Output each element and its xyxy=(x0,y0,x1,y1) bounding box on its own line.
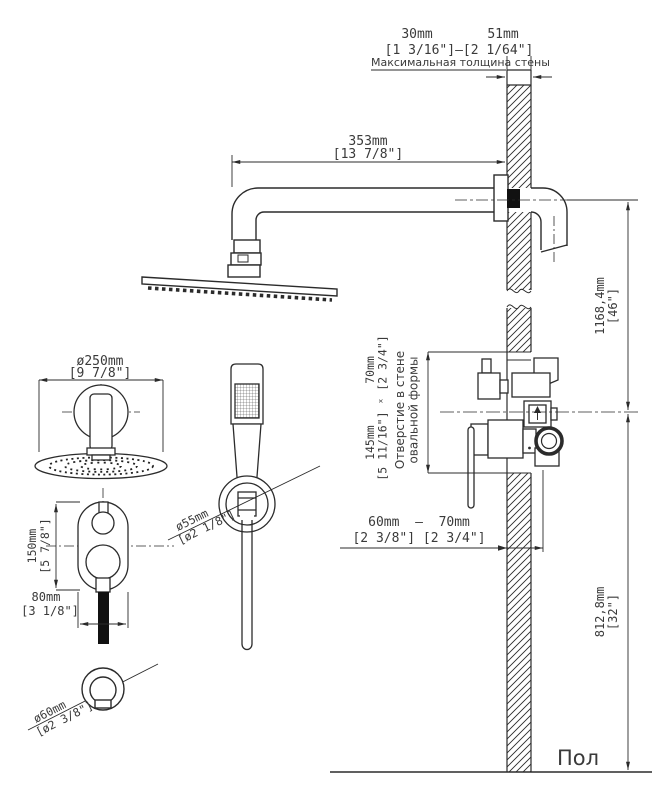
dim-upper-in: [46"] xyxy=(606,288,620,324)
dim-lower-in: [32"] xyxy=(606,594,620,630)
valve-body xyxy=(512,373,550,397)
outlet-tab xyxy=(95,700,111,708)
dim-plate-w-in: [3 1/8"] xyxy=(21,604,79,618)
mixer-lever xyxy=(468,427,474,508)
hand-shower-face xyxy=(235,384,259,418)
lever-base xyxy=(96,578,110,592)
dim-upper-mm: 1168,4mm xyxy=(593,277,607,335)
dim-lower-mm: 812,8mm xyxy=(593,587,607,638)
max-wall-thickness-note: Максимальная толщина стены xyxy=(371,56,550,69)
holder-clamp xyxy=(238,492,256,516)
overhead-shower-front xyxy=(35,384,167,479)
floor-label: Пол xyxy=(557,746,599,770)
control-plate-front xyxy=(46,488,174,644)
shower-system-installation-drawing: 30mm 51mm [1 3/16"]—[2 1/64"] Максимальн… xyxy=(0,0,654,800)
dim-plate-h-in: [5 7/8"] xyxy=(38,518,52,573)
dim-depth-in: [2 3/8"] [2 3/4"] xyxy=(352,531,485,546)
wall-hatch-top xyxy=(507,85,531,188)
dim-wall-max: 51mm xyxy=(487,27,518,42)
drop-pipe xyxy=(90,394,112,450)
diverter-stem-front xyxy=(99,502,108,513)
diverter-knob-stem xyxy=(482,359,491,373)
dim-depth-mm: 60mm — 70mm xyxy=(368,515,470,530)
hole-note-line1: Отверстие в стене xyxy=(393,351,407,469)
dim-plate-w-mm: 80mm xyxy=(32,590,61,604)
mixer-body xyxy=(488,420,523,458)
dim-arm-in: [13 7/8"] xyxy=(333,147,403,162)
dim-plate-h-mm: 150mm xyxy=(25,529,39,564)
hole-note-line2: овальной формы xyxy=(407,356,421,463)
arm-escutcheon xyxy=(494,175,508,221)
mixer-knob-front xyxy=(86,545,120,579)
dim-head-in: [9 7/8"] xyxy=(69,366,132,381)
dim-hole-in: [5 11/16"] ˣ [2 3/4"] xyxy=(376,335,390,480)
diverter-knob-front xyxy=(92,512,114,534)
lever-front xyxy=(98,592,109,644)
wall-hatch-bottom xyxy=(507,473,531,772)
diverter-knob xyxy=(478,373,500,399)
hand-shower xyxy=(219,364,275,650)
shower-arm-side xyxy=(142,175,567,300)
hose xyxy=(242,520,252,644)
wall-hatch-3 xyxy=(507,308,531,352)
wall-hatch-2 xyxy=(507,212,531,290)
arm-wall-connector xyxy=(507,189,520,208)
drawing-canvas: 30mm 51mm [1 3/16"]—[2 1/64"] Максимальн… xyxy=(0,0,654,800)
dim-wall-min: 30mm xyxy=(401,27,432,42)
